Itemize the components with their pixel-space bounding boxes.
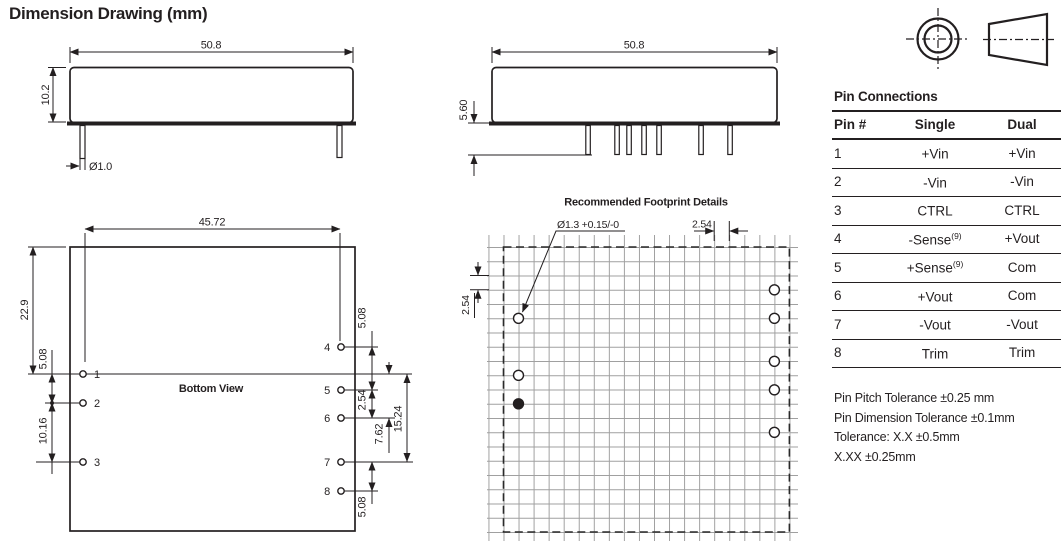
dim-height: 10.2: [40, 85, 52, 106]
dimension-drawing-page: Dimension Drawing (mm) 50.8: [0, 0, 1063, 545]
note-line: Tolerance: X.X ±0.5mm: [834, 428, 1061, 448]
side-view-body: [67, 68, 356, 159]
pin-number: 3: [94, 457, 100, 469]
dim-pin2-pin3: 10.16: [38, 418, 50, 445]
cell-pin: 3: [832, 197, 887, 226]
footprint-title: Recommended Footprint Details: [564, 197, 728, 209]
note-line: Pin Pitch Tolerance ±0.25 mm: [834, 389, 1061, 409]
cell-single: +Vin: [887, 139, 983, 168]
side-view: 50.8 10.2 Ø1.0: [40, 40, 356, 174]
cell-pin: 5: [832, 254, 887, 283]
hole-pin-5: [769, 313, 779, 323]
table-row: 6 +Vout Com: [832, 282, 1061, 311]
dim-pin1-pin2: 5.08: [38, 349, 50, 370]
pin-number: 7: [324, 457, 330, 469]
cell-single: -Vin: [887, 168, 983, 197]
dim-pin4-pin5: 5.08: [357, 308, 369, 329]
tolerance-notes: Pin Pitch Tolerance ±0.25 mm Pin Dimensi…: [832, 389, 1061, 467]
front-view-body: [489, 68, 780, 155]
hole-pin-4: [769, 285, 779, 295]
dim-width: 50.8: [624, 40, 645, 52]
table-row: 2 -Vin -Vin: [832, 168, 1061, 197]
pin-4: [338, 344, 344, 350]
baseplate: [489, 122, 780, 126]
cell-single: -Sense(9): [887, 225, 983, 254]
pcb-grid: [487, 235, 798, 541]
hole-pin-2: [514, 370, 524, 380]
pin-1: [80, 371, 86, 377]
pin-2: [80, 400, 86, 406]
pin-number: 5: [324, 385, 330, 397]
cell-dual: -Vout: [983, 311, 1061, 340]
pin-lead: [80, 126, 85, 159]
cell-pin: 4: [832, 225, 887, 254]
cell-dual: +Vin: [983, 139, 1061, 168]
table-header-row: Pin # Single Dual: [832, 112, 1061, 139]
cell-single: Trim: [887, 339, 983, 368]
table-row: 3 CTRL CTRL: [832, 197, 1061, 226]
pin-lead: [586, 126, 591, 155]
dim-pin-diameter: Ø1.0: [89, 161, 112, 173]
cell-single: CTRL: [887, 197, 983, 226]
table-row: 1 +Vin +Vin: [832, 139, 1061, 168]
dim-pin5-pin6: 2.54: [357, 390, 369, 411]
dim-hole-diameter: Ø1.3 +0.15/-0: [557, 219, 619, 231]
hole-pin-6: [769, 356, 779, 366]
dim-pin7-pin8: 5.08: [357, 497, 369, 518]
pin-connections-panel: Pin Connections Pin # Single Dual 1 +Vin…: [832, 89, 1061, 467]
cell-dual: -Vin: [983, 168, 1061, 197]
cell-single: -Vout: [887, 311, 983, 340]
pin-5: [338, 387, 344, 393]
hole-pin-7: [769, 385, 779, 395]
pin-number: 2: [94, 398, 100, 410]
pin-number: 4: [324, 342, 330, 354]
hole-pin-3-filled: [514, 399, 524, 409]
table-row: 7 -Vout -Vout: [832, 311, 1061, 340]
note-line: Pin Dimension Tolerance ±0.1mm: [834, 409, 1061, 429]
pin-number: 1: [94, 369, 100, 381]
front-view: 50.8 5.60: [458, 40, 780, 177]
pin-lead: [337, 126, 342, 158]
footprint-view: Recommended Footprint Details Ø1.3 +0.15…: [460, 197, 798, 542]
projection-symbol: [906, 8, 1054, 70]
pin-lead: [627, 126, 632, 155]
pin-7: [338, 459, 344, 465]
cell-single: +Vout: [887, 282, 983, 311]
pin-lead: [699, 126, 704, 155]
hole-pin-8: [769, 427, 779, 437]
dim-grid-pitch-h: 2.54: [692, 219, 712, 231]
cell-pin: 7: [832, 311, 887, 340]
cell-dual: Com: [983, 254, 1061, 283]
table-row: 5 +Sense(9) Com: [832, 254, 1061, 283]
cell-pin: 2: [832, 168, 887, 197]
pin-lead: [657, 126, 662, 155]
bottom-view-label: Bottom View: [179, 383, 244, 395]
cell-pin: 8: [832, 339, 887, 368]
cell-dual: CTRL: [983, 197, 1061, 226]
baseplate: [67, 122, 356, 126]
pin-number: 8: [324, 486, 330, 498]
cell-dual: Com: [983, 282, 1061, 311]
header-dual: Dual: [983, 112, 1061, 139]
note-line: X.XX ±0.25mm: [834, 448, 1061, 468]
pin-lead: [615, 126, 620, 155]
table-row: 8 Trim Trim: [832, 339, 1061, 368]
pin-connections-table: Pin # Single Dual 1 +Vin +Vin 2 -Vin -Vi…: [832, 112, 1061, 368]
pin-table-title: Pin Connections: [832, 89, 1061, 112]
pin-6: [338, 415, 344, 421]
dim-top-to-pin1: 22.9: [19, 300, 31, 321]
cell-single: +Sense(9): [887, 254, 983, 283]
cell-dual: Trim: [983, 339, 1061, 368]
table-row: 4 -Sense(9) +Vout: [832, 225, 1061, 254]
hole-pin-1: [514, 313, 524, 323]
cell-pin: 1: [832, 139, 887, 168]
pin-3: [80, 459, 86, 465]
dim-pin-length: 5.60: [458, 100, 470, 121]
dim-15-24: 15.24: [393, 406, 405, 433]
header-pin: Pin #: [832, 112, 887, 139]
cell-dual: +Vout: [983, 225, 1061, 254]
pin-lead: [642, 126, 647, 155]
bottom-view: Bottom View 1 2 3 4 5 6: [19, 217, 413, 532]
pin-number: 6: [324, 413, 330, 425]
dim-pin-span: 45.72: [199, 217, 226, 229]
dim-7-62: 7.62: [374, 424, 386, 445]
dim-grid-pitch-v: 2.54: [460, 295, 472, 315]
cell-pin: 6: [832, 282, 887, 311]
header-single: Single: [887, 112, 983, 139]
dim-width: 50.8: [201, 40, 222, 52]
pin-lead: [728, 126, 733, 155]
pin-8: [338, 488, 344, 494]
